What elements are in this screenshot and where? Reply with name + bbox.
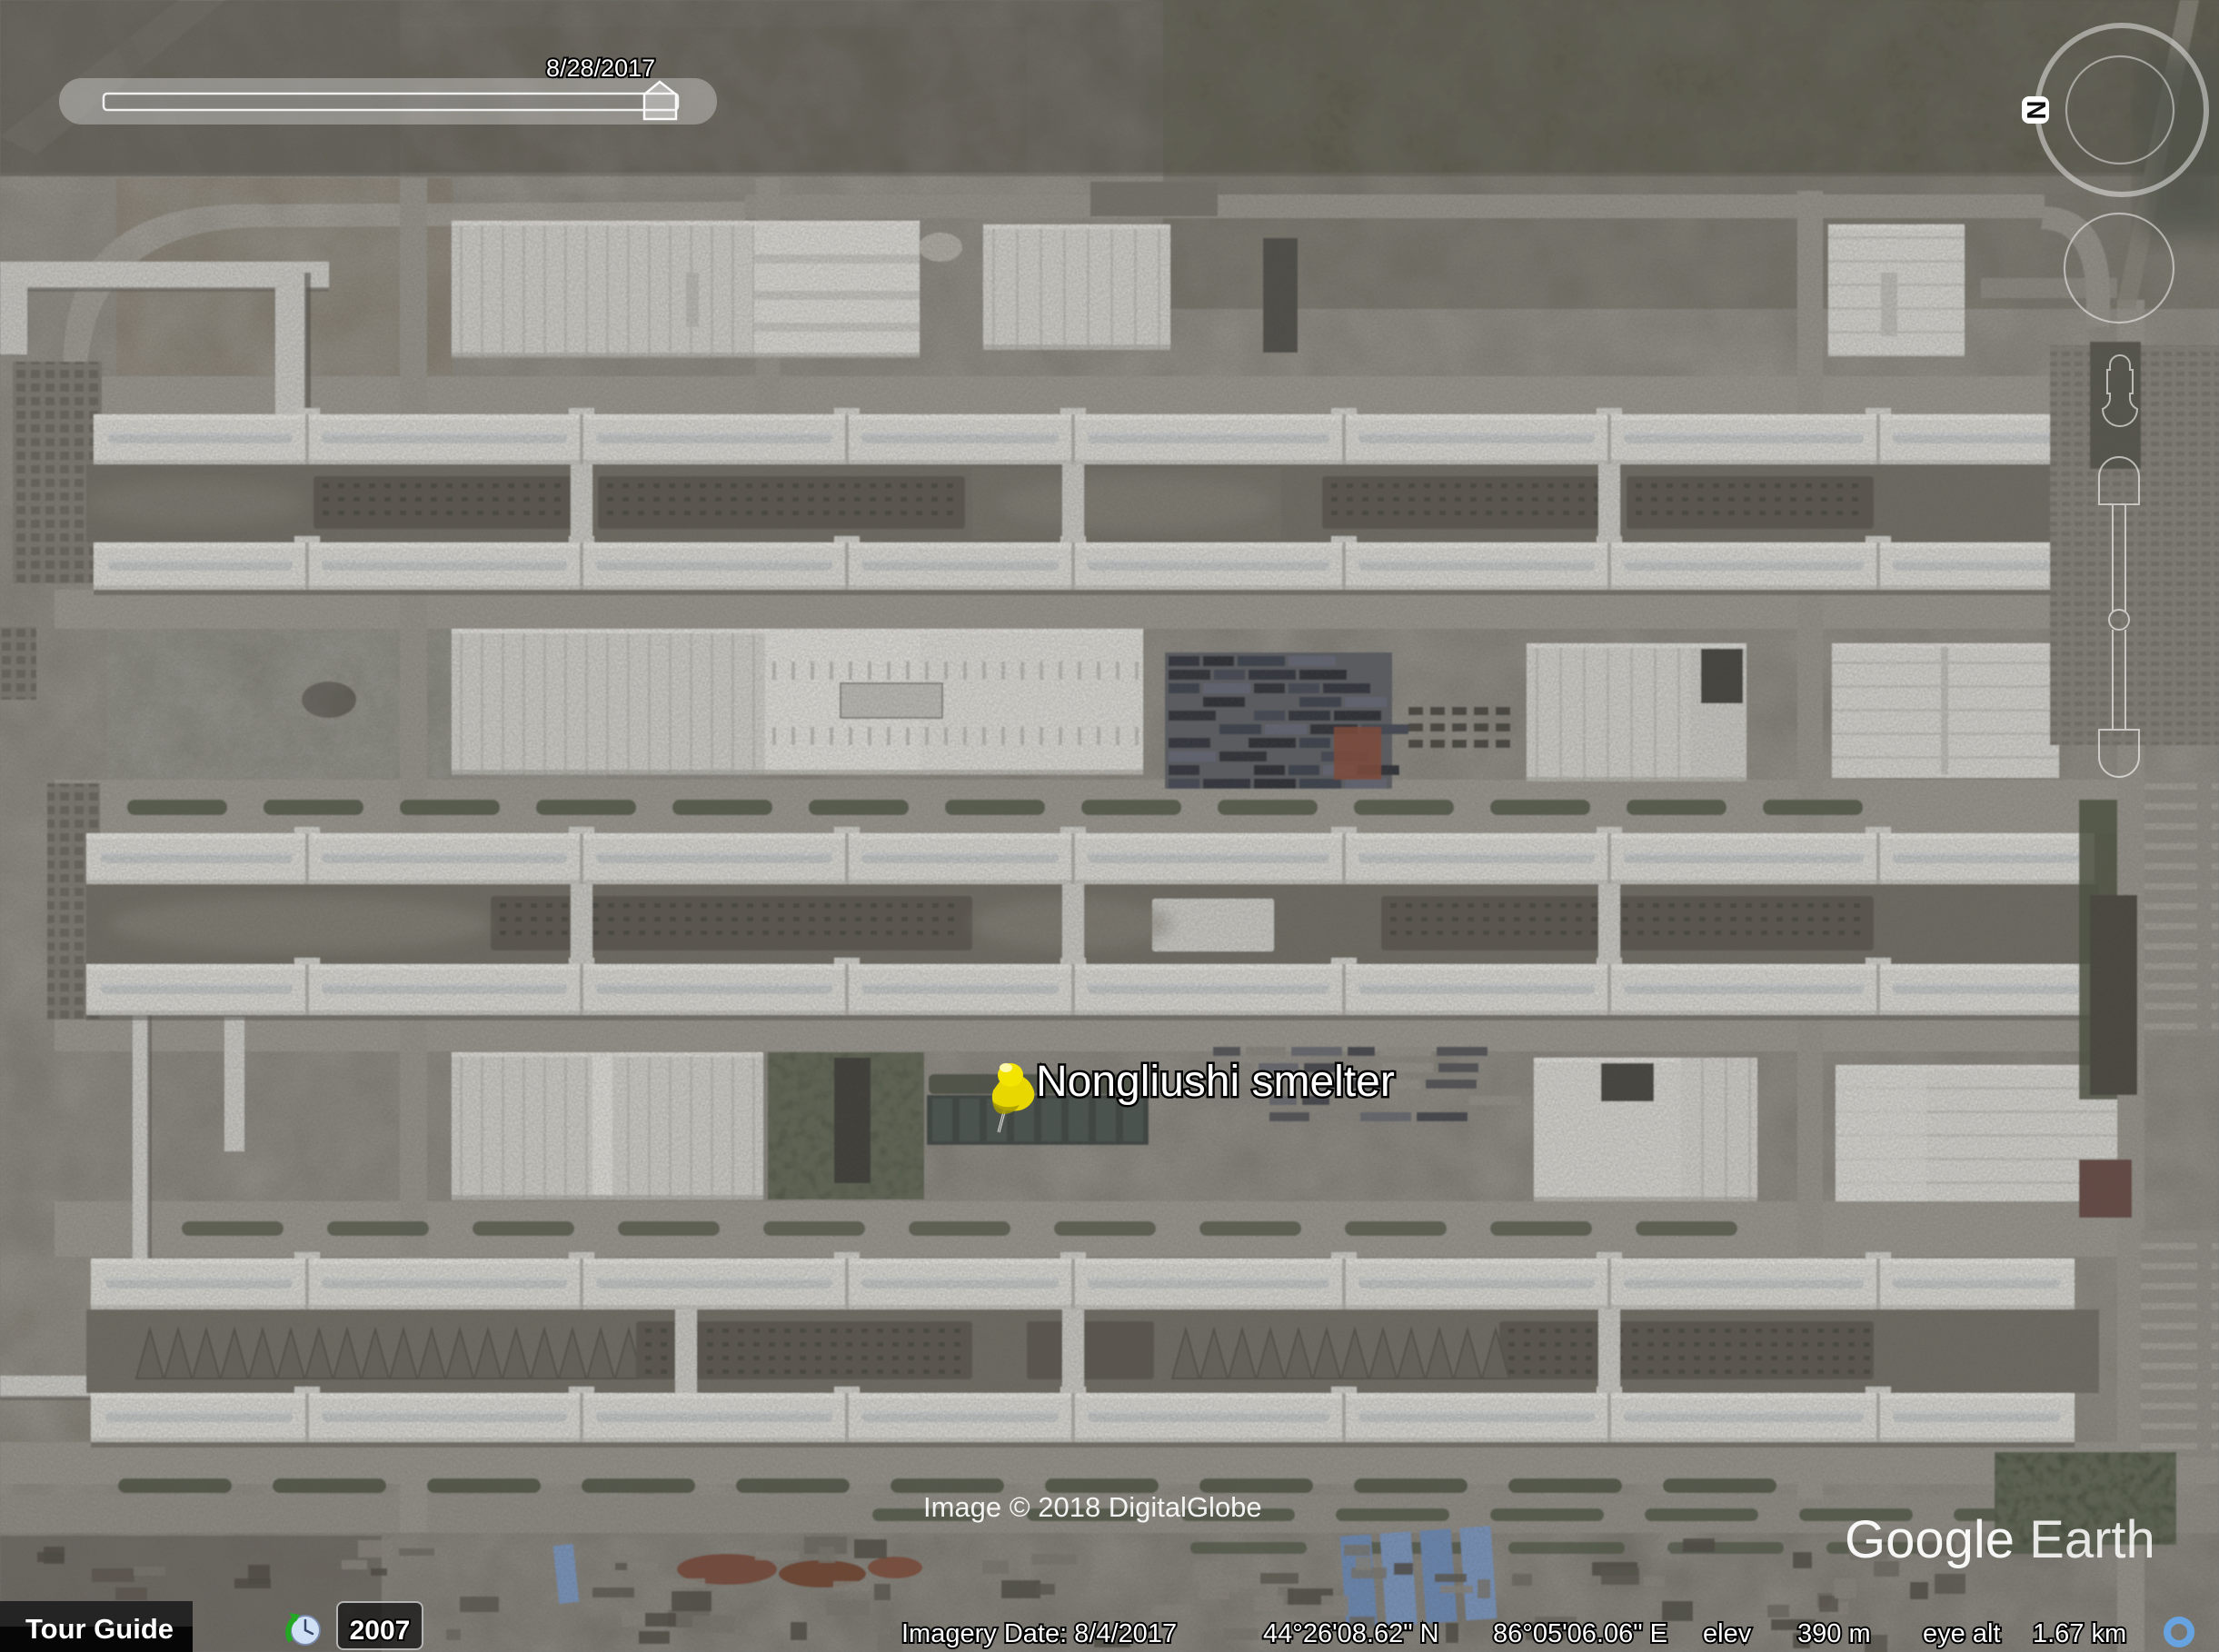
svg-text:eye alt: eye alt: [1923, 1619, 2000, 1648]
svg-text:86°05'06.06" E: 86°05'06.06" E: [1493, 1619, 1667, 1648]
svg-text:1.67 km: 1.67 km: [2033, 1619, 2126, 1648]
svg-text:Nongliushi smelter: Nongliushi smelter: [1036, 1058, 1395, 1106]
svg-text:elev: elev: [1703, 1619, 1752, 1648]
svg-text:2007: 2007: [350, 1616, 411, 1646]
svg-text:44°26'08.62" N: 44°26'08.62" N: [1263, 1619, 1439, 1648]
svg-text:8/28/2017: 8/28/2017: [546, 55, 655, 82]
svg-text:Imagery Date: 8/4/2017: Imagery Date: 8/4/2017: [901, 1619, 1177, 1648]
svg-text:Google Earth: Google Earth: [1845, 1510, 2155, 1569]
svg-text:Tour Guide: Tour Guide: [25, 1613, 174, 1645]
svg-text:390 m: 390 m: [1797, 1619, 1871, 1648]
svg-text:N: N: [2023, 101, 2052, 120]
svg-text:Image © 2018 DigitalGlobe: Image © 2018 DigitalGlobe: [923, 1491, 1262, 1523]
